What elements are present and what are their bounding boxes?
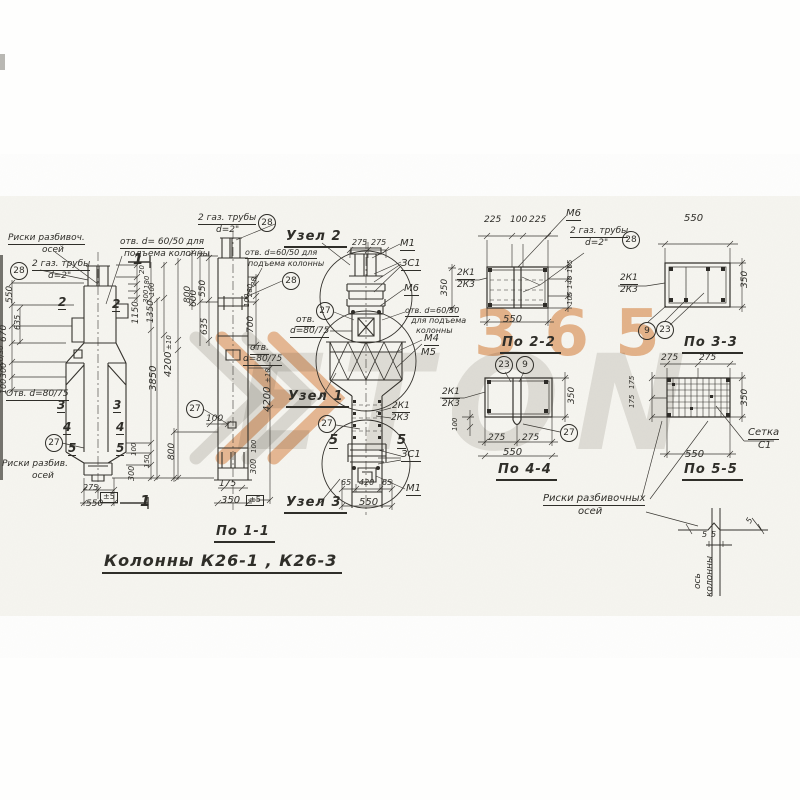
label-3c1-bottom: ЗС1 <box>401 450 421 462</box>
note-riski-razbivochnyh: Риски разбивочных <box>543 494 645 506</box>
dim-300-left-v: 300 <box>0 363 8 378</box>
label-m4: М4 <box>424 334 439 346</box>
note-otv-8075-mid-2: d=80/75 <box>243 355 282 366</box>
dim-550-uzel3: 550 <box>359 498 378 508</box>
section-mark-3a: 3 <box>57 399 65 413</box>
label-setka-2: С1 <box>758 441 771 451</box>
dim-350-po44: 350 <box>568 387 577 404</box>
dim-600-mid-v: 600 <box>190 290 199 307</box>
label-m1-top: М1 <box>400 239 415 251</box>
label-2k1-po22: 2К1 <box>457 269 475 280</box>
dim-550-left-v: 550 <box>6 286 15 303</box>
dim-670-left-v: 670 <box>0 325 9 342</box>
dim-100-v1: 100 <box>149 283 156 296</box>
dim-225b-po22: 225 <box>529 216 546 225</box>
label-os-kolonny: ось <box>694 573 703 589</box>
dim-100-po44: 100 <box>452 418 459 431</box>
callout-28-left: 28 <box>10 262 28 280</box>
dim-300-v1b: 300 <box>128 466 136 481</box>
dim-100-mid-b: 100 <box>206 415 223 424</box>
caption-uzel-3: Узел 3 <box>284 496 347 514</box>
dim-tol5-mid: ±5 <box>246 495 264 506</box>
callout-28-mid-top: 28 <box>258 214 276 232</box>
label-2k3-center: 2К3 <box>391 414 409 423</box>
dim-550-po33: 550 <box>684 214 703 224</box>
label-2k1-po44: 2К1 <box>442 388 460 399</box>
section-mark-4a: 4 <box>63 421 71 435</box>
dim-635-left-v: 635 <box>14 315 22 330</box>
section-mark-5a: 5 <box>68 442 76 456</box>
label-setka: Сетка <box>748 428 779 440</box>
caption-po-3-3: По 3-3 <box>682 336 743 354</box>
caption-uzel-2: Узел 2 <box>284 230 347 248</box>
label-2k3-po44: 2К3 <box>442 400 460 409</box>
dim-275b-uzel2: 275 <box>371 239 386 247</box>
dim-5a-axis: 5 <box>702 531 707 539</box>
caption-po-2-2: По 2-2 <box>500 336 561 354</box>
dim-1150: 1150 <box>132 301 141 324</box>
note-riski-razbiv-bottom: Риски разбив. <box>2 460 68 469</box>
dim-350-po55: 350 <box>741 389 750 406</box>
note-otv-6050-mid: отв. d=60/50 для <box>245 249 317 259</box>
dim-275-left-bottom: 275 <box>83 484 98 492</box>
dim-275a-po44: 275 <box>488 434 505 443</box>
blueprint-page: ETON 365 <box>0 0 800 800</box>
callout-27-center-bot: 27 <box>318 415 336 433</box>
label-2k3-po22: 2К3 <box>457 281 475 290</box>
section-mark-3b: 3 <box>113 399 121 413</box>
section-mark-1-bottom: 1 <box>140 494 150 509</box>
callout-28-mid: 28 <box>282 272 300 290</box>
dim-420-uzel3: 420 <box>359 479 374 487</box>
drawing-title: Колонны К26-1 , К26-3 <box>102 553 342 574</box>
dim-65a-uzel3: 65 <box>341 479 351 487</box>
dim-225a-po22: 225 <box>484 216 501 225</box>
section-mark-2b: 2 <box>112 298 120 312</box>
caption-po-5-5: По 5-5 <box>682 463 743 481</box>
caption-po-4-4: По 4-4 <box>496 463 557 481</box>
label-3c1-top: ЗС1 <box>401 259 421 271</box>
dim-275a-po55: 275 <box>661 354 678 363</box>
dim-350-po22-left: 350 <box>441 279 450 296</box>
dim-350-po33: 350 <box>741 271 750 288</box>
callout-27-center-top: 27 <box>316 302 334 320</box>
label-m1-bottom: М1 <box>406 484 421 496</box>
section-mark-2a: 2 <box>58 296 66 310</box>
label-2k3-po33: 2К3 <box>620 286 638 295</box>
dim-635-mid-v: 635 <box>201 318 210 335</box>
dim-175b-po55: 175 <box>629 395 636 408</box>
label-m6-po22: М6 <box>566 209 581 221</box>
dim-550-mid-v: 550 <box>199 280 208 297</box>
dim-800-mid: 800 <box>168 443 177 460</box>
section-mark-5d: 5 <box>397 434 406 449</box>
note-riski-razbivoch-2: осей <box>42 246 64 255</box>
label-2k1-po33: 2К1 <box>620 274 638 285</box>
callout-9-po33: 9 <box>638 322 656 340</box>
label-m5: М5 <box>421 348 436 358</box>
dim-300-mid-r: 300 <box>250 459 258 474</box>
dim-100-v1b: 100 <box>131 443 138 456</box>
dim-550-left-bottom: 550 <box>86 500 103 509</box>
dim-140-po22: 140 <box>567 276 574 289</box>
caption-po-1-1: По 1-1 <box>214 525 275 543</box>
section-mark-4b: 4 <box>116 421 124 435</box>
dim-20-v1: 20 <box>139 265 146 274</box>
dim-tol10-mid: ±10 <box>265 368 272 383</box>
note-gas-pipes-po22-2: d=2" <box>585 239 608 248</box>
dim-4200-mid: 4200 <box>263 386 273 411</box>
note-otv-8075-center-2: d=80/75 <box>290 327 329 338</box>
dim-100-mid-r: 100 <box>251 440 258 453</box>
dim-105a-po22: 105 <box>567 260 574 273</box>
dim-65b-uzel3: 65 <box>382 479 392 487</box>
dim-350-mid: 350 <box>221 496 240 506</box>
note-gas-pipes-left-2: d=2" <box>48 272 71 281</box>
dim-275b-po55: 275 <box>699 354 716 363</box>
callout-27-mid: 27 <box>186 400 204 418</box>
dim-700-mid: 700 <box>247 316 256 333</box>
dim-550-po44: 550 <box>503 448 522 458</box>
note-riski-razbiv-bottom-2: осей <box>32 472 54 481</box>
dim-550-po55: 550 <box>685 450 704 460</box>
dim-100-mid: 100 <box>244 294 251 307</box>
callout-23-po33: 23 <box>656 321 674 339</box>
dim-175a-po55: 175 <box>629 376 636 389</box>
dim-4200-v1: 4200 <box>164 351 174 376</box>
callout-23-po44: 23 <box>495 356 513 374</box>
callout-28-po22: 28 <box>622 231 640 249</box>
callout-27-po44: 27 <box>560 424 578 442</box>
note-riski-razbivoch: Риски разбивоч. <box>8 234 85 245</box>
section-mark-5b: 5 <box>116 442 124 456</box>
dim-550-po22: 550 <box>503 315 522 325</box>
note-gas-pipes-mid-2: d=2" <box>216 226 239 235</box>
label-os-kolonny-2: колонны <box>706 556 715 597</box>
note-gas-pipes-po22: 2 газ. трубы <box>570 227 628 238</box>
note-gas-pipes-mid: 2 газ. трубы <box>198 214 256 225</box>
dim-5c-axis: 5 <box>745 517 754 525</box>
caption-uzel-1: Узел 1 <box>286 390 349 408</box>
label-m6-center: М6 <box>404 284 419 296</box>
dim-tol10-v1: ±10 <box>166 335 173 350</box>
labels-layer: Риски разбивоч.осей282 газ. трубыd=2"отв… <box>0 0 800 800</box>
dim-175-mid: 175 <box>219 480 236 489</box>
dim-105b-po22: 105 <box>567 292 574 305</box>
dim-1350: 1350 <box>147 300 156 323</box>
dim-275b-po44: 275 <box>522 434 539 443</box>
dim-150-v1: 150 <box>144 455 151 468</box>
note-otv-6050-mid-2: подъема колонны <box>248 260 324 268</box>
section-mark-5c: 5 <box>329 434 338 449</box>
note-otv-6050-center-2: для подъема <box>411 317 466 325</box>
dim-275a-uzel2: 275 <box>352 239 367 247</box>
note-gas-pipes-left: 2 газ. трубы <box>32 260 90 271</box>
note-otv-8075-left: Отв. d=80/75 <box>6 390 69 401</box>
dim-100-po22: 100 <box>510 216 527 225</box>
note-otv-6050-left: отв. d= 60/50 для <box>120 238 204 249</box>
callout-9-po44: 9 <box>516 356 534 374</box>
callout-27-left: 27 <box>45 434 63 452</box>
dim-5b-axis: 5 <box>711 531 716 539</box>
label-2k1-center: 2К1 <box>392 402 410 413</box>
dim-3850: 3850 <box>149 365 159 390</box>
dim-100-left-v: 100 <box>0 379 8 394</box>
note-riski-razbivochnyh-2: осей <box>578 507 602 517</box>
